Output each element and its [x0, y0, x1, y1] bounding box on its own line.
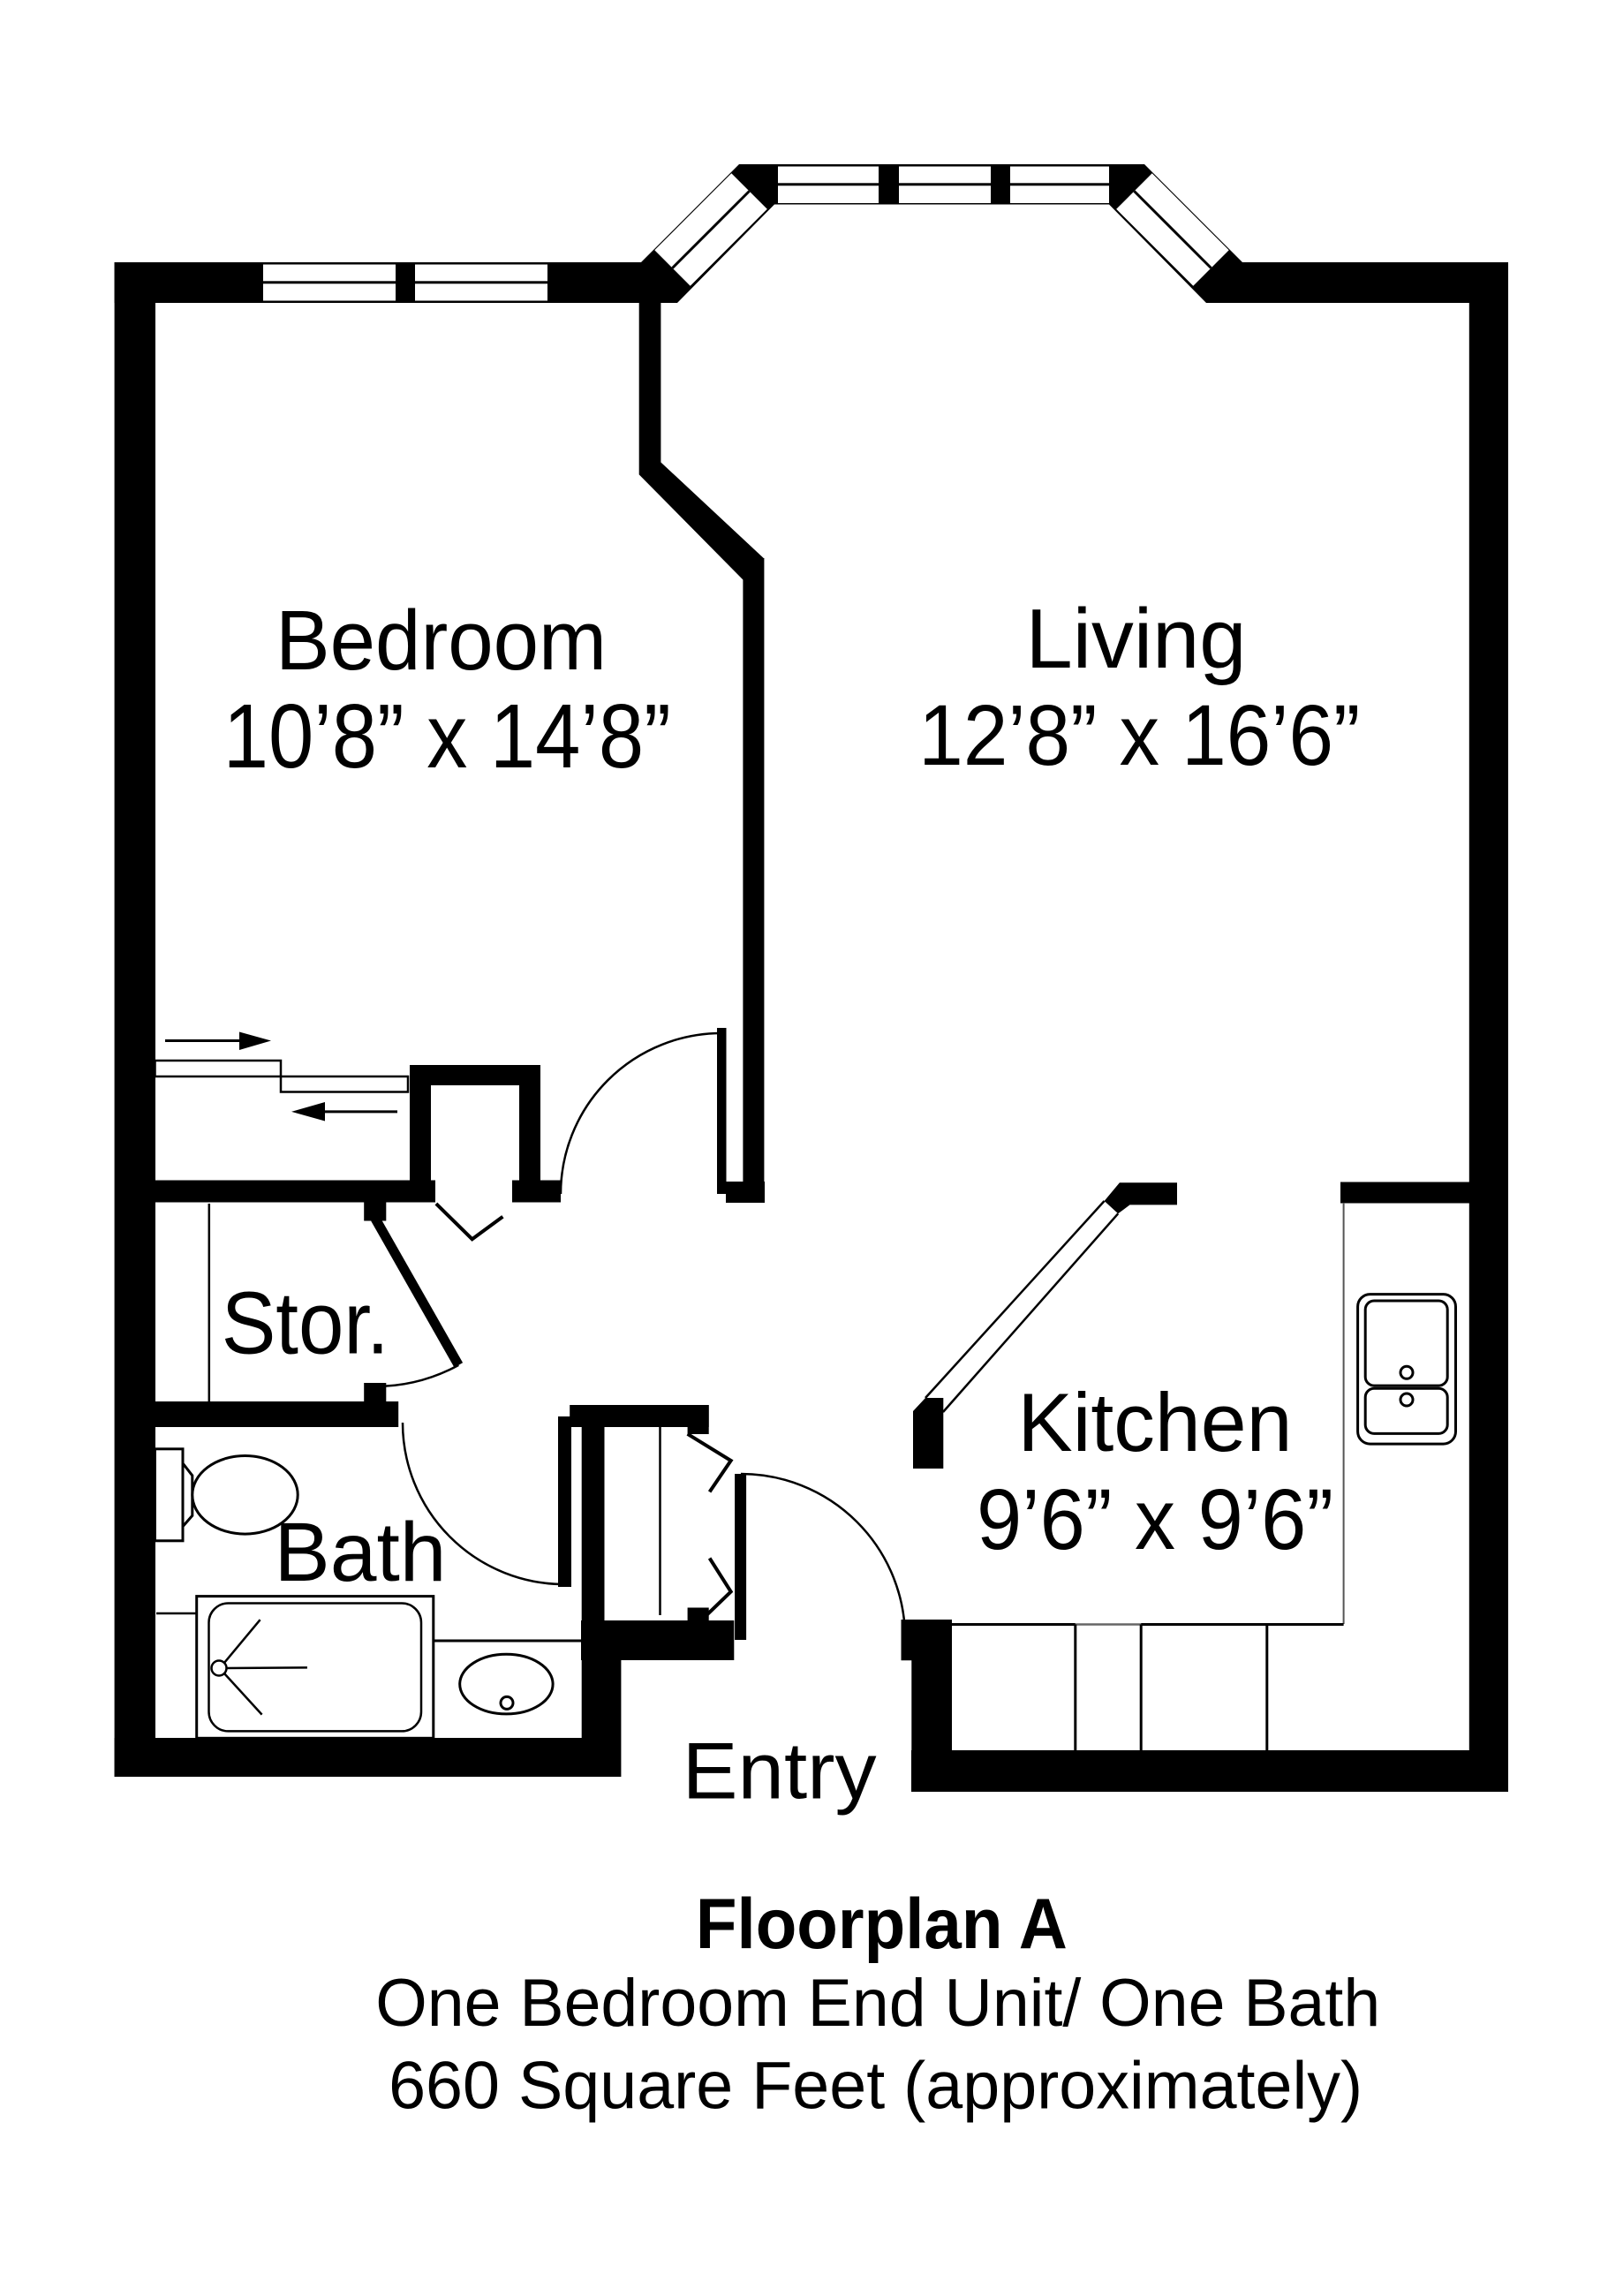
svg-text:Kitchen: Kitchen: [1018, 1376, 1293, 1469]
svg-text:Living: Living: [1026, 592, 1247, 686]
svg-text:Floorplan A: Floorplan A: [696, 1884, 1068, 1964]
svg-text:660 Square Feet (approximately: 660 Square Feet (approximately): [389, 2049, 1363, 2124]
svg-text:Bedroom: Bedroom: [276, 593, 607, 688]
svg-text:Entry: Entry: [683, 1727, 878, 1816]
svg-text:10’8” x 14’8”: 10’8” x 14’8”: [223, 685, 671, 787]
svg-text:One Bedroom End Unit/ One Bath: One Bedroom End Unit/ One Bath: [375, 1966, 1380, 2041]
svg-text:Bath: Bath: [275, 1506, 447, 1599]
svg-text:12’8” x 16’6”: 12’8” x 16’6”: [918, 687, 1360, 783]
svg-text:Stor.: Stor.: [222, 1274, 389, 1373]
svg-text:9’6” x 9’6”: 9’6” x 9’6”: [977, 1471, 1333, 1567]
